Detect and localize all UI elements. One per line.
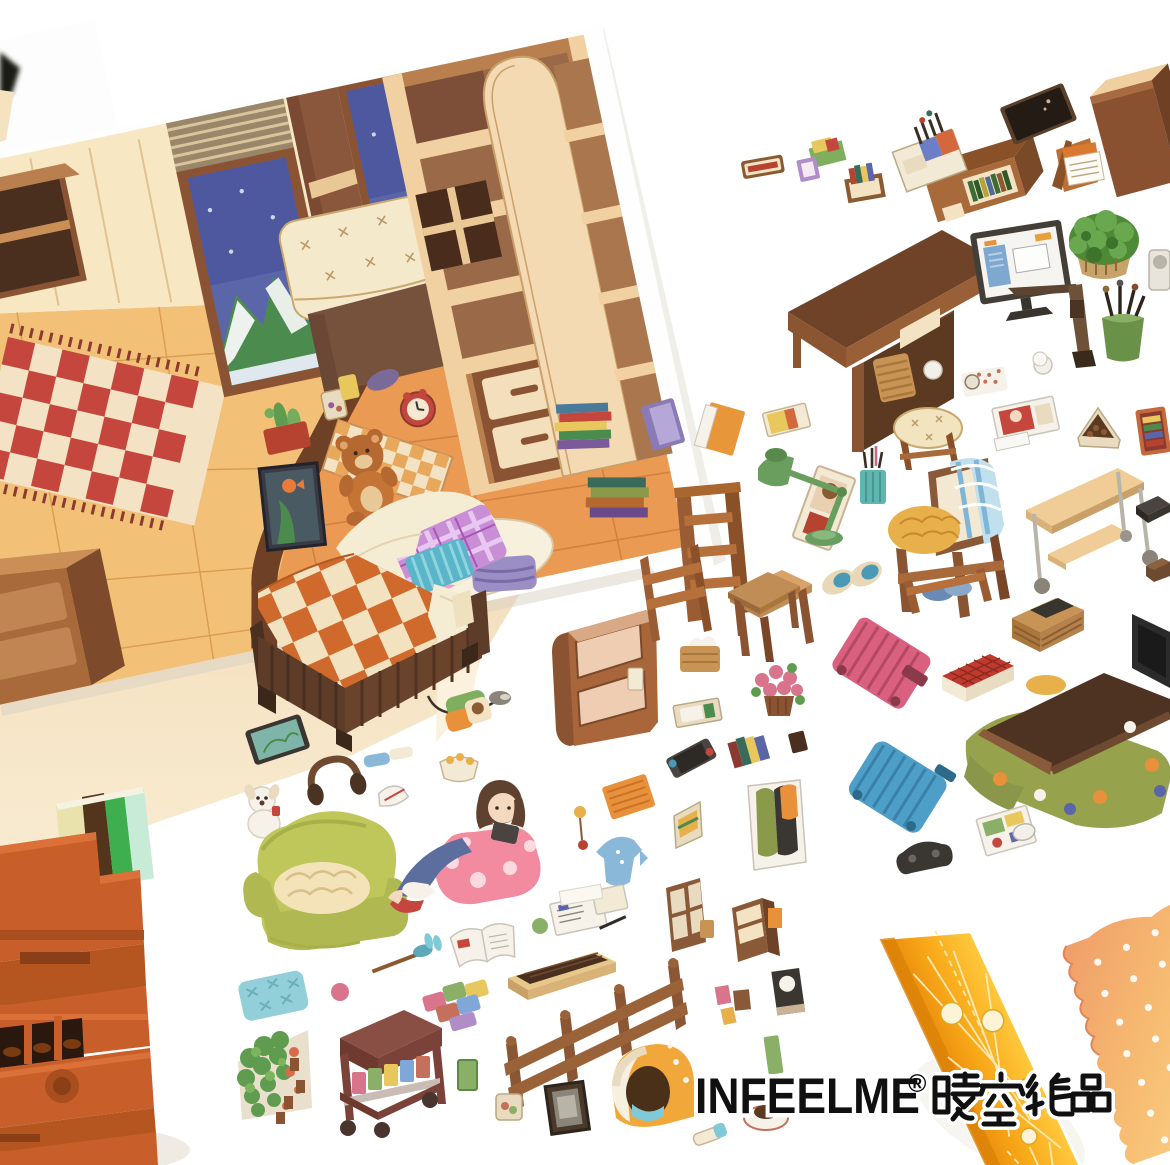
svg-text:®: ® [908,1070,927,1098]
svg-text:INFEELME: INFEELME [695,1069,920,1125]
